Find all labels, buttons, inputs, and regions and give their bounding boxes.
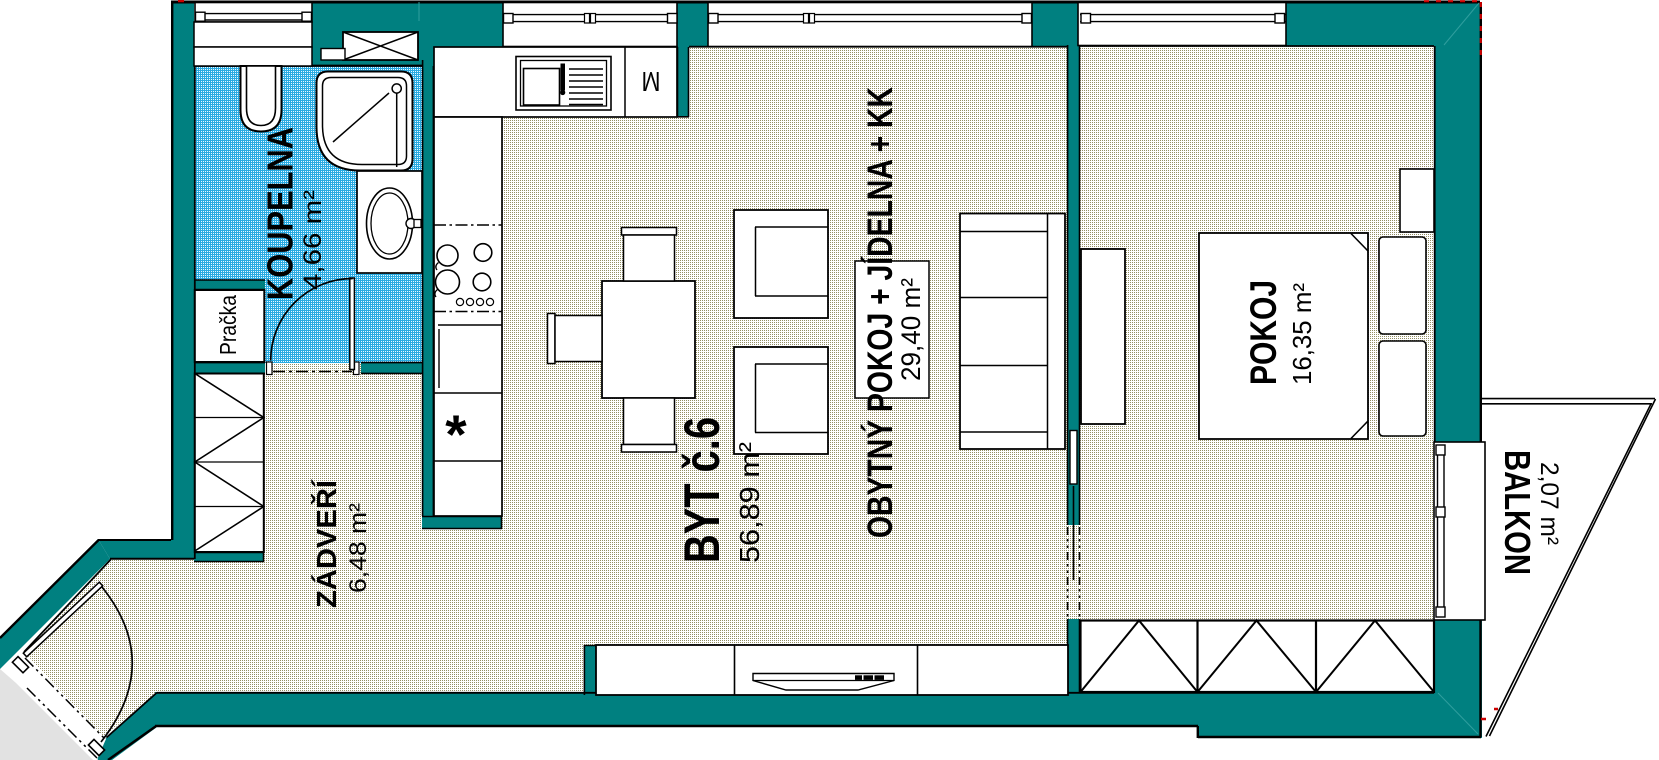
svg-text:6,48 m²: 6,48 m² [345,503,372,593]
svg-text:OBYTNÝ POKOJ + JÍDELNA + KK: OBYTNÝ POKOJ + JÍDELNA + KK [860,87,900,538]
svg-text:BYT č.6: BYT č.6 [674,417,730,563]
svg-text:16,35 m²: 16,35 m² [1287,283,1317,385]
svg-text:4,66 m²: 4,66 m² [299,190,327,290]
svg-text:KOUPELNA: KOUPELNA [260,127,301,300]
svg-text:56,89 m²: 56,89 m² [734,442,765,563]
svg-text:Pračka: Pračka [215,295,241,355]
svg-text:M: M [642,66,661,97]
svg-text:2,07 m²: 2,07 m² [1535,462,1563,545]
svg-text:29,40 m²: 29,40 m² [896,278,926,381]
svg-text:POKOJ: POKOJ [1243,280,1284,385]
svg-text:BALKON: BALKON [1497,450,1538,575]
svg-text:ZÁDVEŘÍ: ZÁDVEŘÍ [311,479,342,608]
svg-text:*: * [445,403,467,465]
